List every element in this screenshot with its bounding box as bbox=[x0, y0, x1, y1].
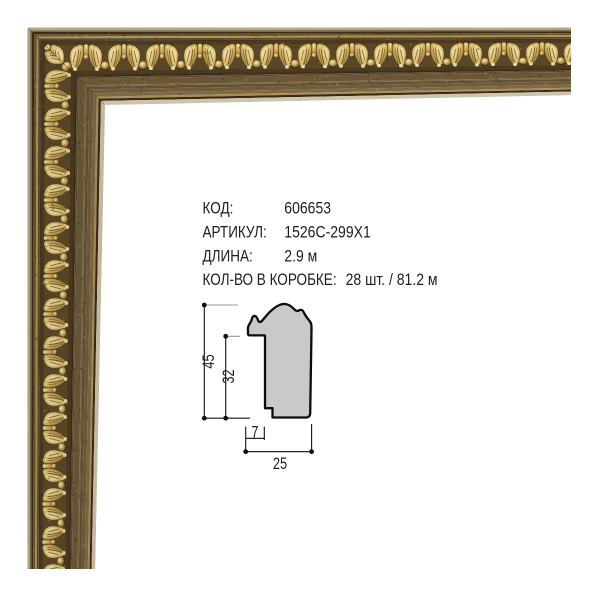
svg-text:7: 7 bbox=[251, 424, 258, 442]
svg-text:ДЛИНА:: ДЛИНА: bbox=[203, 247, 253, 266]
svg-text:2.9 м: 2.9 м bbox=[284, 247, 317, 265]
svg-text:КОЛ-ВО В КОРОБКЕ:: КОЛ-ВО В КОРОБКЕ: bbox=[203, 271, 337, 290]
svg-text:606653: 606653 bbox=[284, 199, 331, 217]
svg-text:КОД:: КОД: bbox=[203, 199, 234, 218]
svg-text:25: 25 bbox=[273, 455, 287, 473]
svg-text:1526C-299X1: 1526C-299X1 bbox=[284, 223, 370, 241]
svg-text:32: 32 bbox=[220, 369, 238, 383]
svg-text:45: 45 bbox=[200, 354, 218, 368]
svg-text:АРТИКУЛ:: АРТИКУЛ: bbox=[203, 223, 267, 242]
svg-text:28 шт. / 81.2 м: 28 шт. / 81.2 м bbox=[346, 271, 438, 289]
